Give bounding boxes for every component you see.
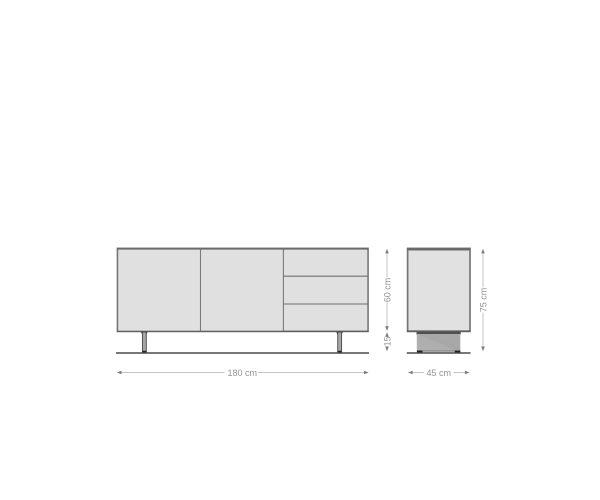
svg-text:15: 15 [382,336,392,346]
svg-text:45 cm: 45 cm [426,368,451,378]
svg-text:75 cm: 75 cm [478,288,488,313]
svg-text:60 cm: 60 cm [382,278,392,303]
svg-text:180 cm: 180 cm [228,368,258,378]
